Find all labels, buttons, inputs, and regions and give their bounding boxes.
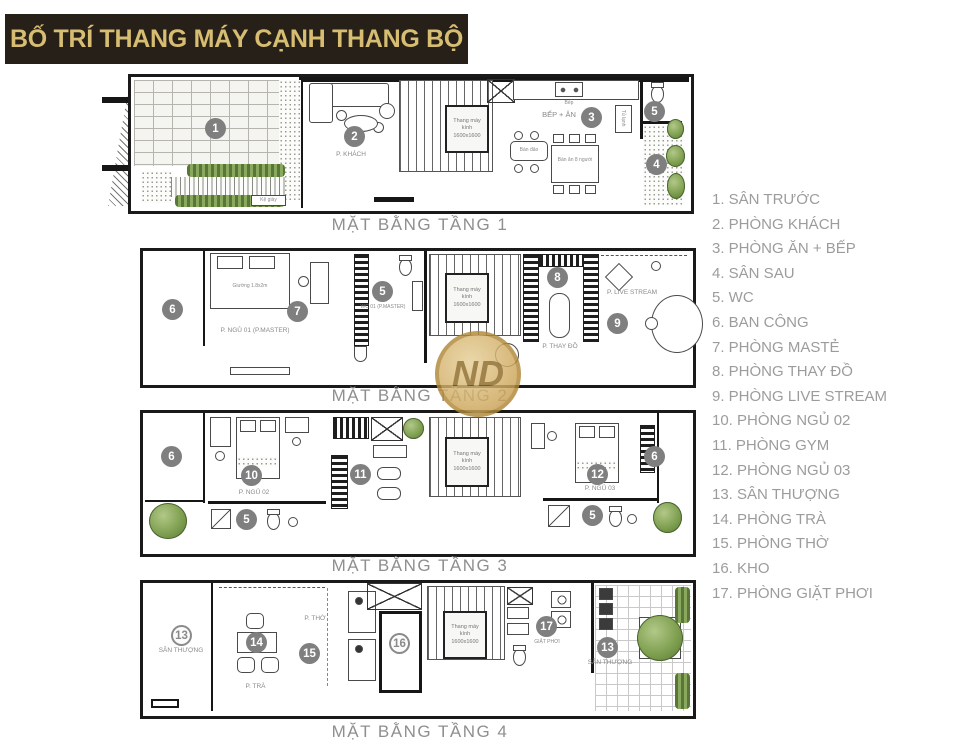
tea-chair [246,613,264,629]
room-badge-bedroom3: 12 [587,464,608,485]
legend-item: 10. PHÒNG NGỦ 02 [712,409,967,434]
wc-wall [208,501,326,504]
planter-box [599,603,613,615]
floor-plan-2: 6 Giường 1.8x2m 7 P. NGỦ 01 (P.MASTER) 5… [140,248,696,388]
altar-item [355,645,363,653]
stepping-path [171,177,285,197]
room-badge-balcony: 6 [162,299,183,320]
sink-unit [507,623,529,635]
pillow [249,256,275,269]
legend-item: 15. PHÒNG THỜ [712,532,967,557]
wardrobe [583,254,599,342]
legend-item: 12. PHÒNG NGỦ 03 [712,459,967,484]
mirror [215,451,225,461]
vanity [210,417,231,447]
opening-line [219,587,325,588]
bed-label: Giường 1.8x2m [210,283,290,289]
room-badge-bedroom2: 10 [241,465,262,486]
pillow [599,426,615,438]
bedroom3-label: P. NGỦ 03 [577,485,623,493]
wc-wall [543,498,658,501]
shoe-cabinet-label: Kệ giày [251,197,286,203]
stool [514,164,523,173]
dining-chair [569,134,580,143]
living-room-wall [301,77,303,208]
terrace-left-label: SÂN THƯỢNG [151,647,211,655]
master-label: P. NGỦ 01 (P.MASTER) [213,327,297,335]
title-banner: BỐ TRÍ THANG MÁY CẠNH THANG BỘ [5,14,468,64]
sofa-chaise [309,83,333,123]
altar-table [348,639,376,681]
wc-wall [424,251,427,363]
balcony-tree [653,502,682,533]
room-badge-wc: 5 [644,101,665,122]
gym-plant [403,418,424,439]
dressing-label: P. THAY ĐỒ [531,343,589,351]
legend-item: 9. PHÒNG LIVE STREAM [712,385,967,410]
terrace-right-label: SÂN THƯỢNG [581,659,639,667]
tea-chair [237,657,255,673]
room-badge-wc-right: 5 [582,505,603,526]
pillow [260,420,276,432]
planter-wall [145,500,203,502]
toilet-icon [399,259,412,276]
floor-plan-1: Kệ giày 1 2 P. KHÁCH Thang máy kính 1600… [128,74,694,214]
balcony-tree [149,503,187,539]
floor-caption-4: MẶT BẰNG TẦNG 4 [270,722,570,742]
dining-chair [585,134,596,143]
shower [211,509,231,529]
dining-chair [569,185,580,194]
island-label: Bàn đảo [510,147,548,153]
elevator: Thang máy kính 1600x1600 [445,105,489,153]
worship-label: P. THỜ [293,615,337,623]
room-badge-livestream: 9 [607,313,628,334]
toilet-icon [609,510,622,527]
tea-chair [261,657,279,673]
room-badge-laundry: 17 [536,616,557,637]
gate-post [102,165,128,171]
backyard-plant [667,173,685,199]
ring-light-icon [651,261,661,271]
desk-chair [298,276,309,287]
nd-logo-watermark: ND [435,331,521,417]
legend-list: 1. SÂN TRƯỚC 2. PHÒNG KHÁCH 3. PHÒNG ĂN … [712,188,967,606]
room-badge-wc-left: 5 [236,509,257,530]
skylight-xbox [367,583,422,610]
terrace-wall [211,583,213,711]
sink [627,514,637,524]
planter-box [599,618,613,630]
room-badge-balcony-left: 6 [161,446,182,467]
toilet-icon [267,513,280,530]
tv-console [374,197,414,202]
wc1-label: WC 01 (P.MASTER) [359,304,407,310]
stool [292,437,301,446]
room-badge-balcony-right: 6 [644,446,665,467]
tea-label: P. TRÀ [233,683,278,691]
legend-item: 4. SÂN SAU [712,262,967,287]
planter-box [599,588,613,600]
floor-caption-3: MẶT BẰNG TẦNG 3 [270,556,570,576]
desk-chair [547,431,557,441]
altar-item [355,597,363,605]
legend-item: 7. PHÒNG MASTẺ [712,336,967,361]
room-badge-worship: 15 [299,643,320,664]
desk [531,423,545,449]
stool [514,131,523,140]
sink-unit [507,607,529,619]
dining-table [551,145,599,183]
room-badge-terrace-left: 13 [171,625,192,646]
elevator: Thang máy kính 1600x1600 [443,611,487,659]
skylight-xbox [371,417,403,441]
bench [230,367,290,375]
rug-diamond [605,263,633,291]
legend-item: 13. SÂN THƯỢNG [712,483,967,508]
room-badge-storage: 16 [389,633,410,654]
exercise-bike [377,467,401,480]
shaft-xbox [507,587,533,605]
legend-item: 2. PHÒNG KHÁCH [712,213,967,238]
gate-post [102,97,128,103]
legend-item: 3. PHÒNG ĂN + BẾP [712,237,967,262]
legend-item: 14. PHÒNG TRÀ [712,508,967,533]
wardrobe [523,254,539,342]
pillow [579,426,595,438]
livestream-label: P. LIVE STREAM [601,289,663,297]
room-badge-gym: 11 [350,464,371,485]
sink [288,517,298,527]
terrace-shrub [675,587,690,623]
hedge-row [187,164,285,177]
room-badge-front-yard: 1 [205,118,226,139]
balcony-wall [203,413,205,503]
legend-item: 11. PHÒNG GYM [712,434,967,459]
legend-item: 17. PHÒNG GIẶT PHƠI [712,582,967,607]
bench-rounded [354,346,367,362]
legend-item: 1. SÂN TRƯỚC [712,188,967,213]
wardrobe-top [539,254,584,267]
floor-caption-1: MẶT BẰNG TẦNG 1 [270,215,570,235]
treadmill [373,445,407,458]
terrace-shrub [675,673,690,709]
shower [548,505,570,527]
blanket-band [237,457,279,467]
room-badge-living: 2 [344,126,365,147]
elevator: Thang máy kính 1600x1600 [445,437,489,487]
dining-chair [553,185,564,194]
legend-item: 6. BAN CÔNG [712,311,967,336]
page-title: BỐ TRÍ THANG MÁY CẠNH THANG BỘ [10,25,463,54]
pillow [217,256,243,269]
backyard-plant [666,145,685,167]
armchair [379,103,395,119]
room-badge-tea: 14 [246,632,267,653]
dining-table-label: Bàn ăn 8 người [551,157,599,163]
exercise-bike [377,487,401,500]
toilet-icon [513,649,526,666]
floor-caption-2: MẶT BẰNG TẦNG 2 [270,386,570,406]
wardrobe [354,254,369,346]
yard-gravel-corner [141,171,173,203]
vanity [412,281,423,311]
dresser [285,417,309,433]
stove [555,82,583,97]
stream-chair [645,317,658,330]
dumbbell-rack [331,455,348,509]
elevator: Thang máy kính 1600x1600 [445,273,489,323]
living-room-label: P. KHÁCH [321,151,381,159]
partition-line [327,588,328,686]
stool [530,164,539,173]
stove-label: Bếp [555,100,583,106]
laundry-label: GIẶT PHƠI [525,639,569,645]
curtain-line [601,255,687,256]
room-badge-kitchen: 3 [581,107,602,128]
floor-plan-3: 6 10 P. NGỦ 02 5 11 Thang máy kính 1600x… [140,410,696,557]
room-badge-master: 7 [287,301,308,322]
stream-desk [651,295,703,353]
desk [310,262,329,304]
terrace-step [151,699,179,708]
legend-item: 8. PHÒNG THAY ĐỒ [712,360,967,385]
washing-machine [551,591,571,608]
cabinet-xbox [487,79,515,103]
stool [530,131,539,140]
room-badge-backyard: 4 [646,154,667,175]
fridge-label: Tủ lạnh [620,100,626,136]
room-badge-wc1: 5 [372,281,393,302]
dining-chair [585,185,596,194]
floor-plan-4: 13 SÂN THƯỢNG 14 P. TRÀ P. THỜ 15 16 Tha… [140,580,696,719]
room-badge-terrace-right: 13 [597,637,618,658]
gym-bench [333,417,369,439]
watermark-text: ND [452,353,504,395]
bedroom2-label: P. NGỦ 02 [231,489,277,497]
legend-item: 16. KHO [712,557,967,582]
legend-item: 5. WC [712,286,967,311]
kitchen-label: BẾP + ĂN [529,110,589,119]
backyard-plant [667,119,684,139]
room-badge-dressing: 8 [547,267,568,288]
pillow [240,420,256,432]
dining-chair [553,134,564,143]
dressing-island [549,293,570,338]
balcony-wall [203,251,205,346]
